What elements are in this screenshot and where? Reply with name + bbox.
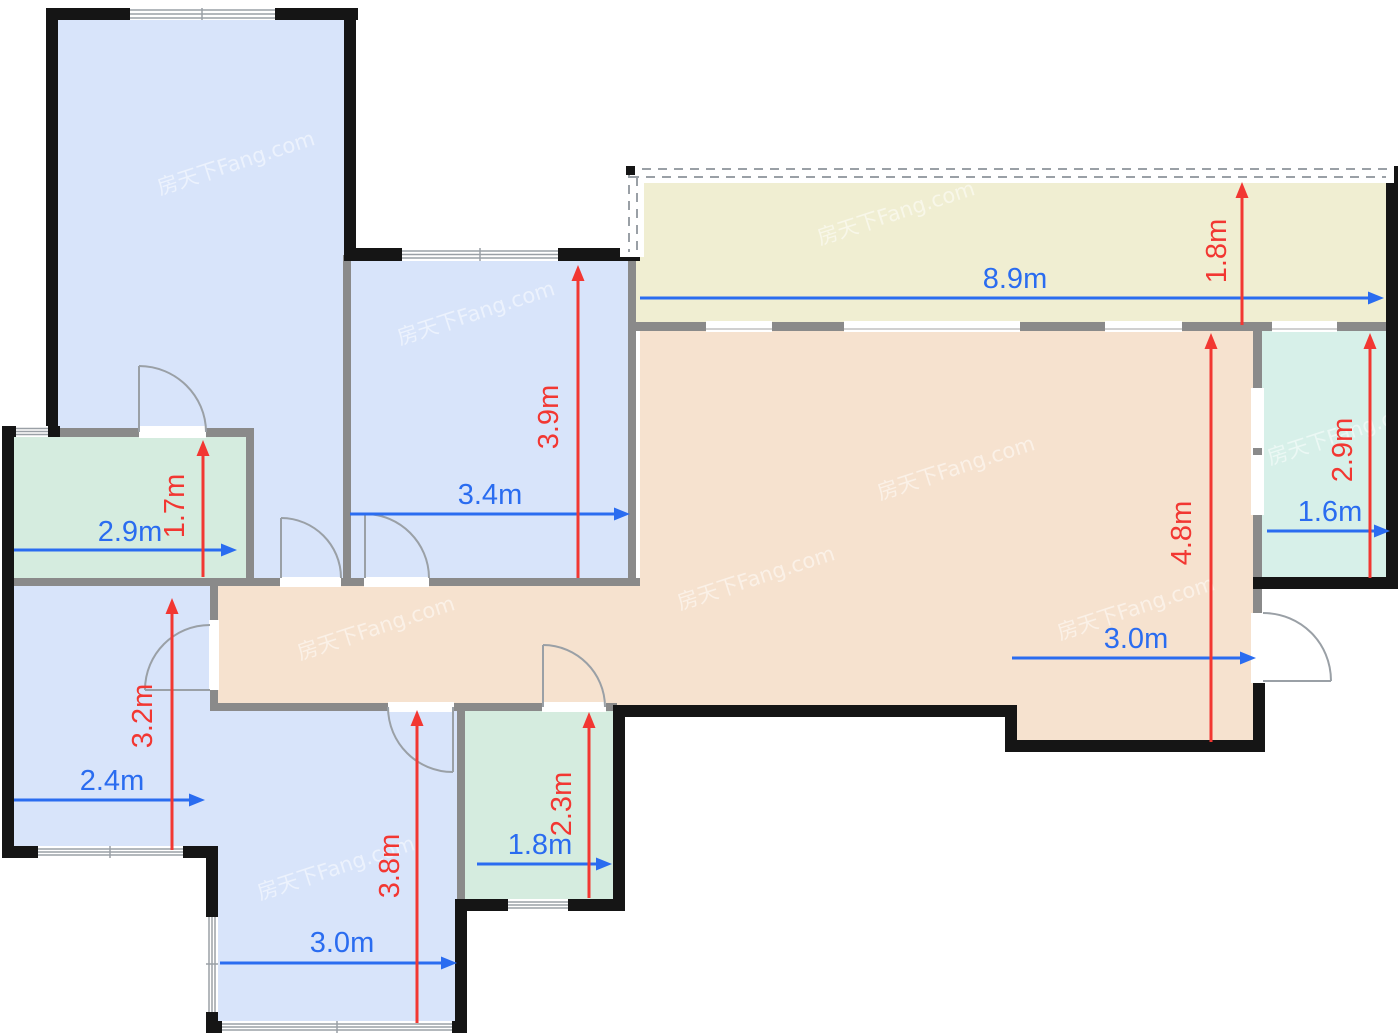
- sliding-door-stub: [1253, 448, 1262, 455]
- dim-label: 8.9m: [983, 263, 1047, 295]
- dim-label: 4.8m: [1166, 501, 1198, 565]
- dim-label: 1.6m: [1298, 496, 1362, 528]
- floor-plan: 房天下Fang.com 房天下Fang.com 房天下Fang.com 房天下F…: [0, 0, 1400, 1035]
- room-bath-left: [8, 430, 250, 582]
- room-bedroom-left: [8, 582, 214, 852]
- room-balcony: [632, 176, 1394, 326]
- dim-label: 3.8m: [374, 834, 406, 898]
- window-bath-left: [16, 426, 48, 437]
- dim-label: 1.8m: [1201, 219, 1233, 283]
- dim-label: 2.9m: [1327, 418, 1359, 482]
- dim-label: 3.0m: [310, 927, 374, 959]
- dim-label: 2.4m: [80, 765, 144, 797]
- dim-label: 3.9m: [533, 385, 565, 449]
- dim-label: 3.4m: [458, 479, 522, 511]
- room-bath-mid: [461, 705, 617, 905]
- door-entry: [1263, 613, 1331, 681]
- dim-label: 3.2m: [127, 684, 159, 748]
- dim-label: 2.9m: [98, 516, 162, 548]
- window-bedroom-left: [38, 846, 183, 858]
- window-bedroom-bottom-left: [206, 917, 218, 1012]
- dim-label: 3.0m: [1104, 623, 1168, 655]
- dim-label: 1.7m: [159, 474, 191, 538]
- window-bath-mid: [508, 899, 568, 911]
- window-bedroom-top-left: [130, 8, 275, 20]
- window-bedroom-mid-top: [402, 248, 558, 261]
- dim-label: 2.3m: [546, 772, 578, 836]
